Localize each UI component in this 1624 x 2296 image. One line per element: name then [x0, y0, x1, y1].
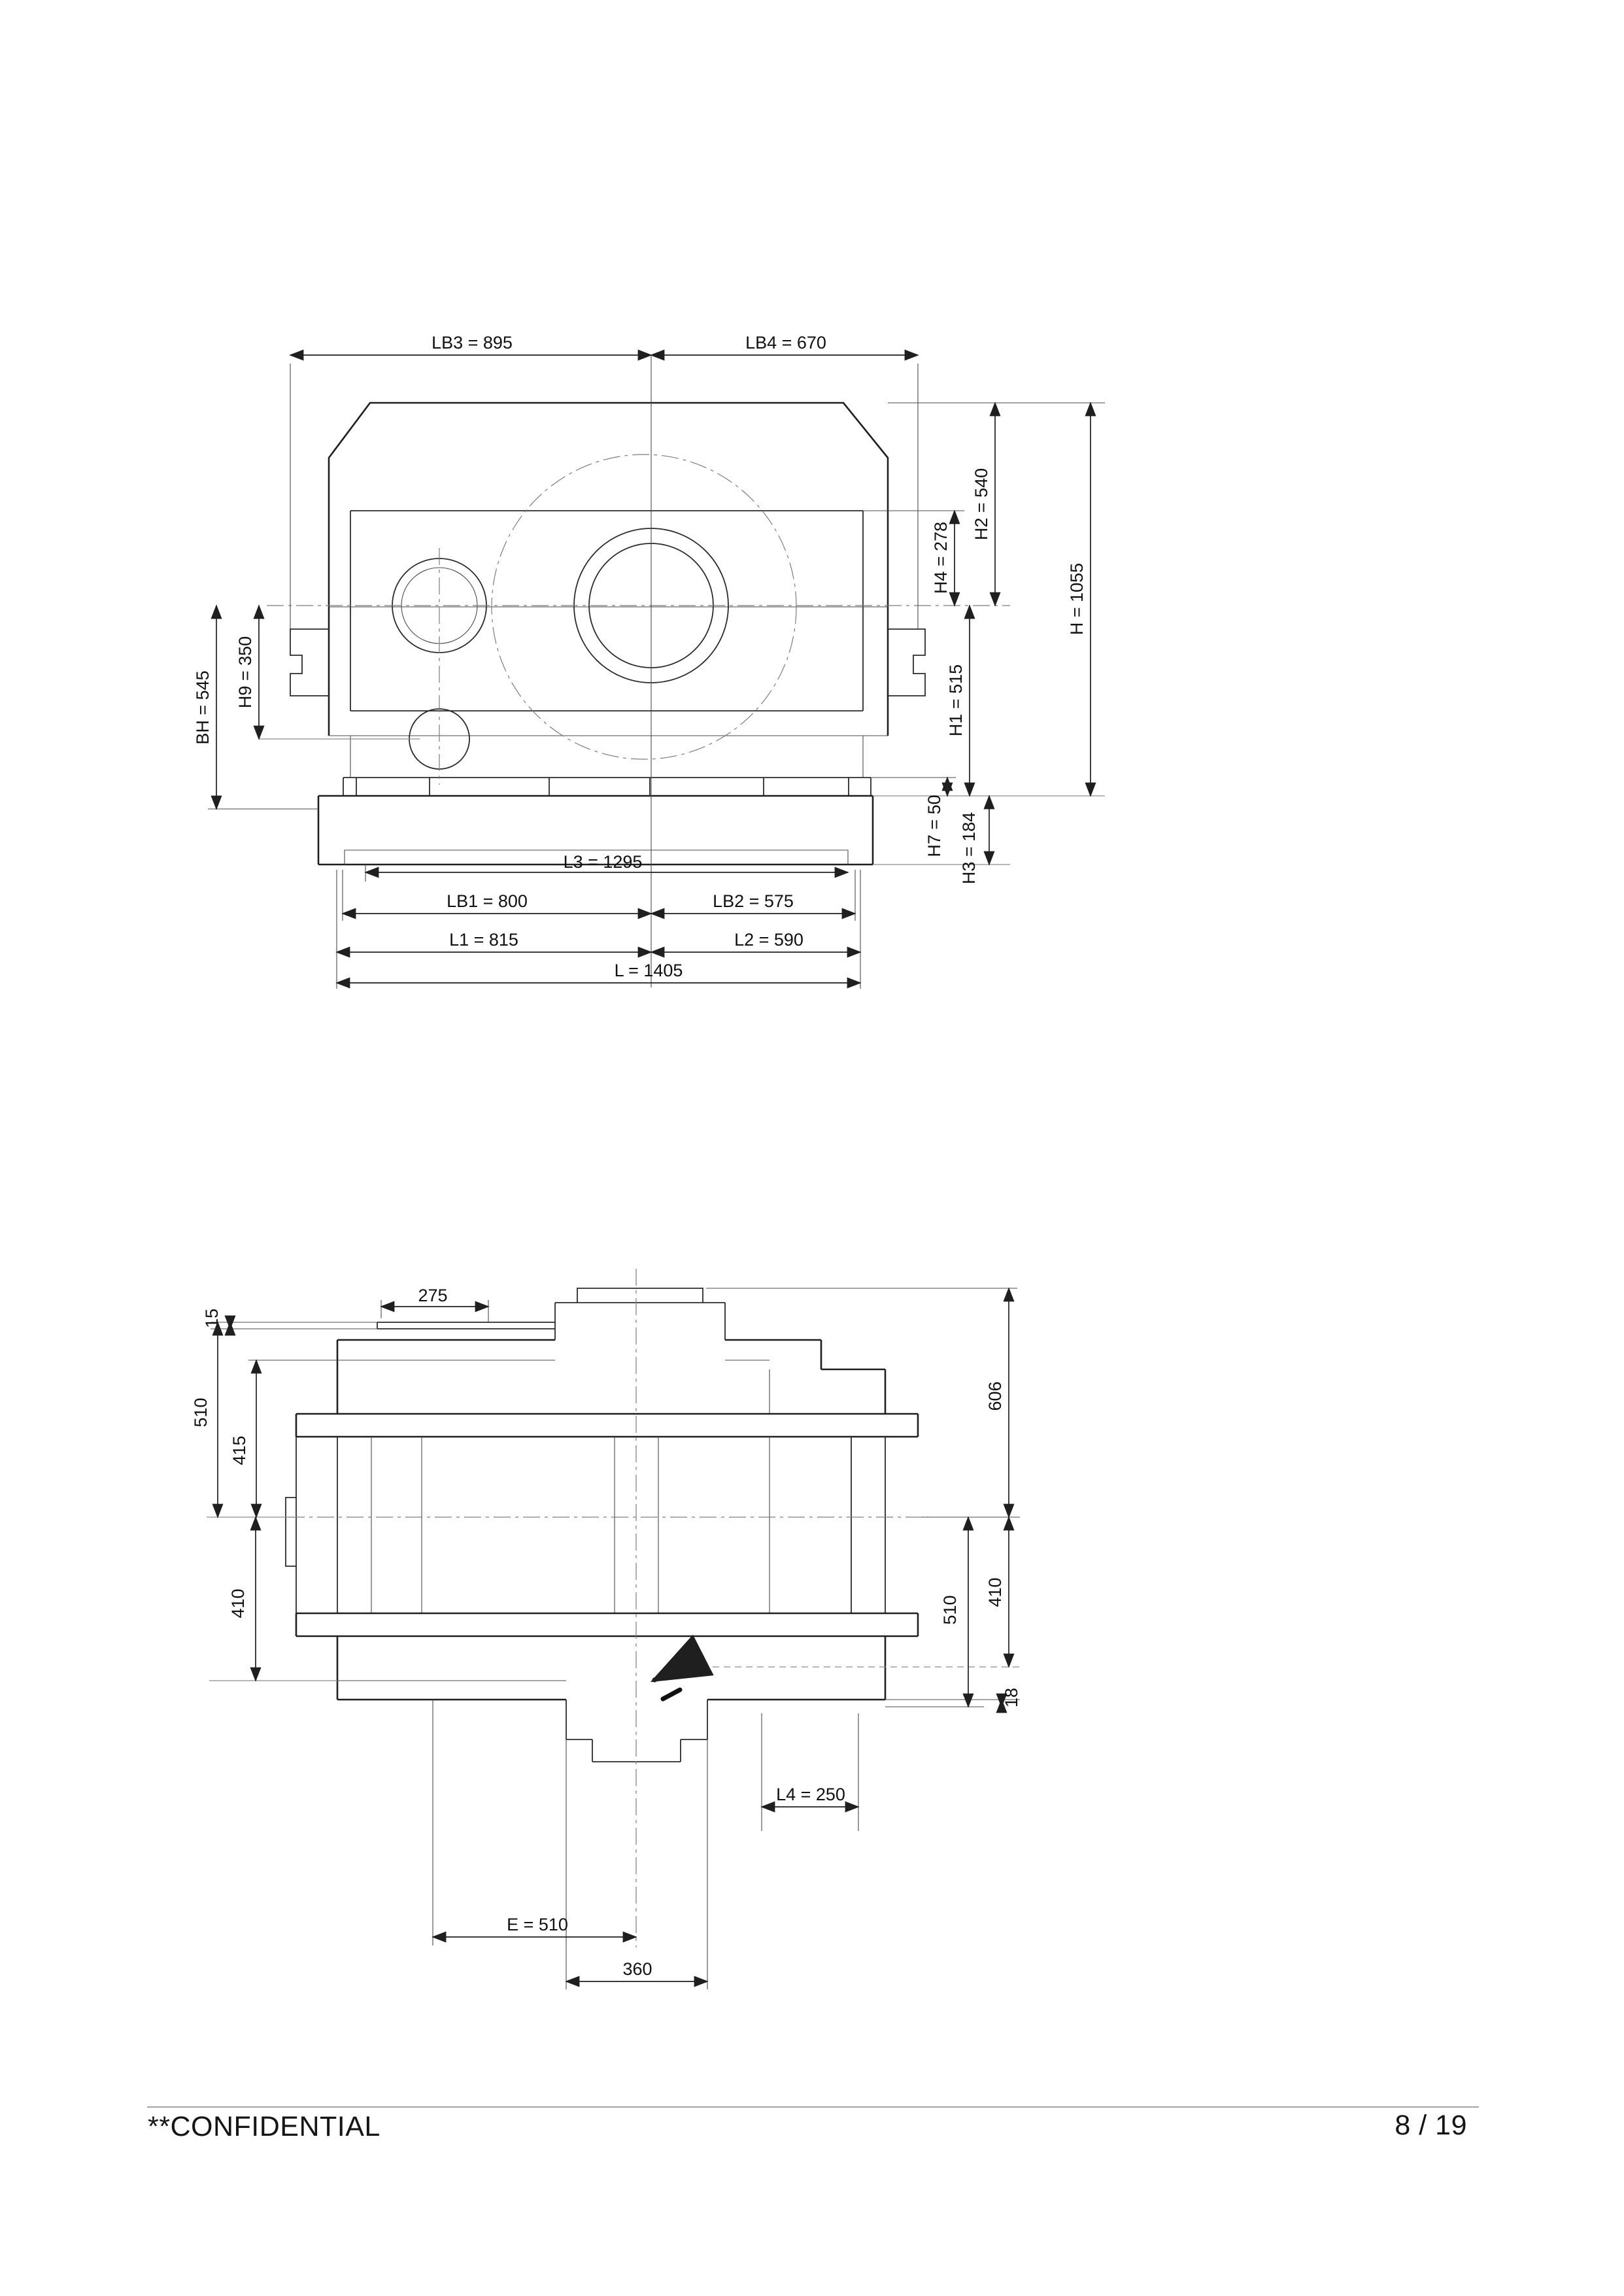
side-flange-left	[290, 629, 329, 696]
dim-lb4: LB4 = 670	[651, 333, 918, 355]
confidential-watermark: **CONFIDENTIAL	[148, 2111, 381, 2143]
dim-label-l2: L2 = 590	[734, 930, 804, 950]
dim-label-360: 360	[622, 1959, 652, 1979]
front-plate	[350, 511, 863, 711]
technical-drawing-canvas: LB3 = 895 LB4 = 670 H4 = 278 H2 = 540 H …	[0, 0, 1624, 2296]
side-flange-right	[888, 629, 925, 696]
dim-label-h1: H1 = 515	[946, 664, 966, 736]
dim-right-510: 510	[940, 1517, 968, 1707]
dim-lb2: LB2 = 575	[651, 891, 855, 914]
top-left-flange-plate	[377, 1322, 555, 1329]
mid-body-sides	[296, 1437, 885, 1613]
dim-right-410: 410	[985, 1517, 1009, 1667]
dim-h7: H7 = 50	[924, 778, 947, 857]
dim-360: 360	[566, 1959, 707, 1981]
dim-label-h9: H9 = 350	[235, 636, 255, 708]
dim-e: E = 510	[433, 1915, 636, 1937]
dim-label-l1: L1 = 815	[449, 930, 518, 950]
plan-extension-lines	[211, 1288, 1020, 1989]
dim-l4: L4 = 250	[762, 1785, 858, 1807]
dim-h3: H3 = 184	[959, 796, 989, 884]
drawing-sheet: LB3 = 895 LB4 = 670 H4 = 278 H2 = 540 H …	[0, 0, 1624, 2296]
dim-label-275: 275	[418, 1286, 447, 1305]
plan-left-mid-reference	[207, 1517, 337, 1681]
dim-label-lb4: LB4 = 670	[745, 333, 826, 352]
dim-left-510: 510	[191, 1322, 218, 1517]
dim-label-h4: H4 = 278	[931, 522, 951, 594]
plan-view-drawing: 275 15 510 415 410 606 410	[191, 1269, 1023, 1989]
dim-label-l4: L4 = 250	[776, 1785, 845, 1804]
dim-label-right-18: 18	[1002, 1688, 1021, 1707]
dim-h: H = 1055	[1067, 403, 1091, 796]
dim-lb3: LB3 = 895	[290, 333, 651, 355]
body-bottom-outline	[337, 1636, 885, 1700]
dim-l1: L1 = 815	[337, 930, 651, 952]
dim-h2: H2 = 540	[972, 403, 995, 606]
top-shaft-boss	[555, 1288, 725, 1340]
dim-label-lb1: LB1 = 800	[447, 891, 528, 911]
dim-label-h7: H7 = 50	[924, 795, 944, 857]
dim-label-lb2: LB2 = 575	[713, 891, 794, 911]
dim-label-left-410: 410	[228, 1588, 248, 1618]
dim-l3: L3 = 1295	[365, 852, 848, 872]
dim-right-606: 606	[985, 1288, 1009, 1517]
dim-left-415: 415	[229, 1360, 256, 1517]
dim-left-410: 410	[228, 1517, 256, 1681]
bottom-shaft-boss	[566, 1700, 707, 1762]
body-top-outline	[337, 1340, 885, 1414]
dim-h4: H4 = 278	[931, 511, 955, 606]
rotation-direction-arrow	[654, 1664, 686, 1699]
dim-label-right-410: 410	[985, 1577, 1005, 1607]
extension-lines	[208, 364, 1105, 989]
dim-label-right-606: 606	[985, 1381, 1005, 1411]
dim-label-left-415: 415	[229, 1435, 249, 1465]
dim-h1: H1 = 515	[946, 606, 970, 796]
dim-label-h3: H3 = 184	[959, 812, 979, 884]
dim-label-left-510: 510	[191, 1397, 211, 1427]
left-notch	[286, 1498, 296, 1566]
upper-flange-band	[296, 1414, 918, 1437]
mid-body-inner-verticals	[371, 1437, 770, 1613]
dim-label-l3: L3 = 1295	[564, 852, 643, 872]
dim-label-h: H = 1055	[1067, 563, 1087, 635]
dim-label-e: E = 510	[507, 1915, 568, 1934]
dim-275: 275	[381, 1286, 488, 1307]
dim-label-lb3: LB3 = 895	[431, 333, 513, 352]
dim-label-h2: H2 = 540	[972, 468, 991, 540]
dim-bh: BH = 545	[193, 606, 216, 809]
dim-l: L = 1405	[337, 961, 860, 983]
dim-label-bh: BH = 545	[193, 670, 212, 744]
lower-flange-band	[296, 1613, 918, 1636]
dim-l2: L2 = 590	[651, 930, 860, 952]
dim-label-15: 15	[202, 1309, 222, 1328]
housing-outline	[329, 403, 888, 736]
page-number: 8 / 19	[1395, 2110, 1467, 2142]
dim-right-18: 18	[1002, 1688, 1021, 1707]
dim-lb1: LB1 = 800	[343, 891, 651, 914]
front-view-drawing: LB3 = 895 LB4 = 670 H4 = 278 H2 = 540 H …	[193, 333, 1105, 989]
dim-15: 15	[202, 1309, 230, 1329]
dim-label-l: L = 1405	[615, 961, 683, 980]
body-top-inner-lines	[337, 1360, 770, 1414]
dim-h9: H9 = 350	[235, 606, 259, 739]
base-band	[343, 778, 871, 796]
dim-label-right-510: 510	[940, 1595, 960, 1624]
